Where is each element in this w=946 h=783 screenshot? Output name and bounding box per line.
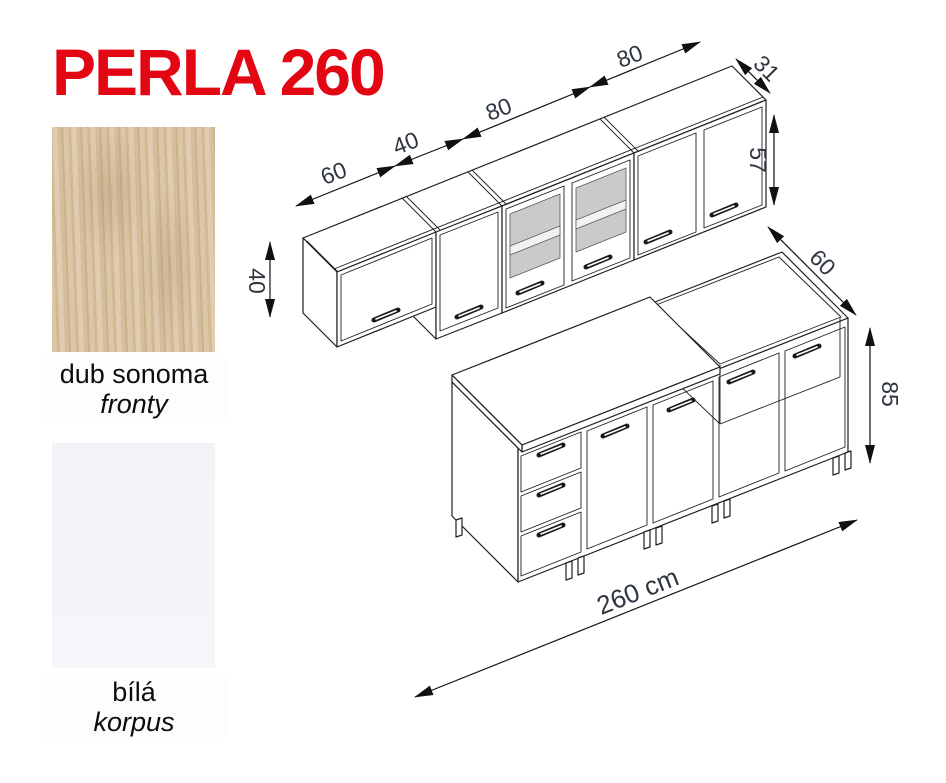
dim-upper-depth: 31: [748, 50, 784, 86]
dim-upper-width-4: 80: [613, 39, 646, 72]
dim-upper-width-3: 80: [482, 92, 515, 125]
dim-upper-height-short: 40: [244, 268, 270, 294]
dim-total-width: 260 cm: [592, 561, 682, 620]
dim-upper-height-tall: 57: [745, 147, 771, 173]
dim-upper-width-1: 60: [317, 156, 350, 189]
dim-line-upper-80b: [590, 42, 700, 87]
product-sheet: PERLA 260 dub sonoma fronty bílá korpus: [0, 0, 946, 783]
dim-upper-width-2: 40: [389, 126, 422, 159]
kitchen-isometric-drawing: 60 40 80 80 31 57 40 60 85 260 cm: [0, 0, 946, 783]
dim-base-height: 85: [877, 381, 903, 407]
dim-line-total-260: [415, 520, 857, 697]
dim-base-depth: 60: [804, 244, 840, 280]
